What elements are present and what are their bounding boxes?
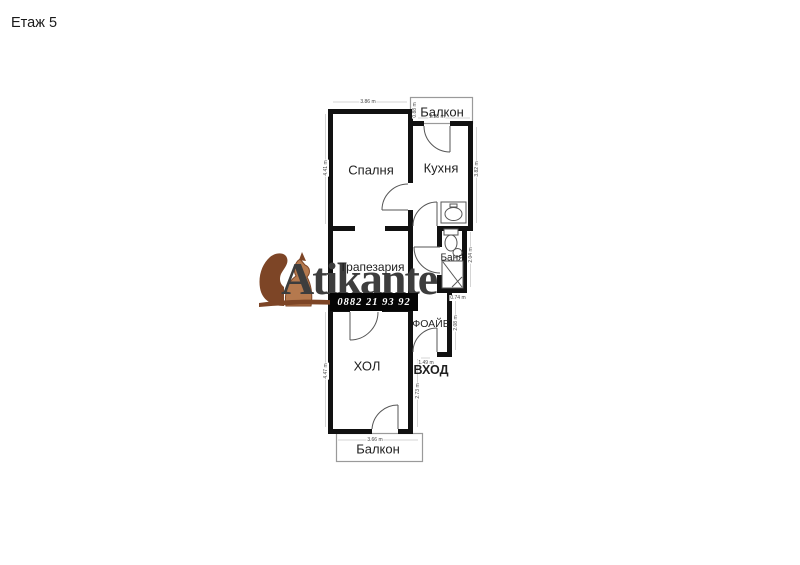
toilet-icon (444, 229, 458, 251)
shower-icon (442, 261, 463, 288)
dim-kitchen-right: 3.82 m (474, 160, 480, 177)
door-bedroom-kitchen (382, 184, 408, 210)
dim-foyer-right: 2.08 m (453, 314, 459, 331)
door-dining-living (350, 312, 378, 340)
washbasin-icon (441, 202, 466, 223)
phone-badge: 0882 21 93 92 (330, 293, 418, 311)
dim-bath-right: 2.04 m (468, 246, 474, 263)
room-label-balcony-top: Балкон (420, 105, 464, 120)
room-label-balcony-bottom: Балкон (356, 442, 400, 457)
room-label-dining: Трапезария (340, 260, 405, 274)
door-entrance (413, 328, 437, 352)
entrance-label: ВХОД (413, 363, 448, 377)
dim-balcony-top-left: 0.88 m (412, 101, 418, 118)
page-title: Етаж 5 (11, 15, 57, 31)
dim-bedroom-left: 4.41 m (323, 159, 329, 176)
dim-living-right: 2.73 m (415, 382, 421, 399)
dim-bath-bottom: 0.74 m (449, 295, 466, 301)
door-living-balcony (372, 405, 398, 429)
room-label-kitchen: Кухня (424, 161, 459, 176)
dim-bedroom-top: 3.86 m (359, 99, 376, 105)
floor-plan-page: Етаж 5 (0, 0, 800, 565)
dim-living-left: 4.47 m (323, 362, 329, 379)
room-label-living: ХОЛ (354, 359, 381, 374)
door-kitchen-balcony (424, 126, 450, 152)
phone-number: 0882 21 93 92 (337, 297, 410, 308)
room-label-bedroom: Спалня (348, 163, 393, 178)
door-kitchen-hall (413, 202, 437, 226)
room-label-foyer: ФОАЙЕ (412, 318, 449, 330)
room-label-bath: Баня (440, 253, 463, 264)
